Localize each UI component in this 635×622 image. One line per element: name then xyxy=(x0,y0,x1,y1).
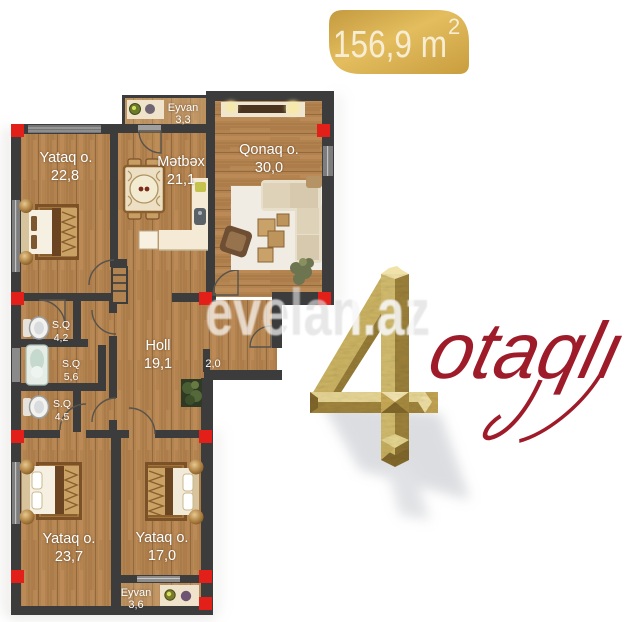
svg-text:Eyvan: Eyvan xyxy=(121,587,152,599)
svg-text:3,3: 3,3 xyxy=(175,114,190,126)
svg-text:Holl: Holl xyxy=(146,338,171,354)
svg-text:156,9 m: 156,9 m xyxy=(333,24,447,66)
svg-text:4,2: 4,2 xyxy=(54,332,69,344)
svg-text:30,0: 30,0 xyxy=(255,160,283,176)
svg-text:Yataq o.: Yataq o. xyxy=(136,530,189,546)
svg-text:2: 2 xyxy=(448,14,460,39)
svg-text:17,0: 17,0 xyxy=(148,548,176,564)
svg-text:4,5: 4,5 xyxy=(55,411,70,423)
svg-text:S.Q: S.Q xyxy=(52,319,70,331)
svg-text:Qonaq o.: Qonaq o. xyxy=(239,142,299,158)
svg-text:5,6: 5,6 xyxy=(64,371,79,383)
svg-text:Mətbəx: Mətbəx xyxy=(157,154,205,170)
svg-text:otaqlı: otaqlı xyxy=(421,306,633,396)
svg-text:Yataq o.: Yataq o. xyxy=(40,150,93,166)
svg-text:S.Q: S.Q xyxy=(53,398,71,410)
svg-text:Yataq o.: Yataq o. xyxy=(43,531,96,547)
svg-text:19,1: 19,1 xyxy=(144,356,172,372)
svg-text:S.Q: S.Q xyxy=(62,358,80,370)
svg-text:Eyvan: Eyvan xyxy=(168,102,199,114)
svg-text:2,0: 2,0 xyxy=(205,358,220,370)
svg-text:3,6: 3,6 xyxy=(128,599,143,611)
svg-text:21,1: 21,1 xyxy=(167,172,195,188)
svg-text:23,7: 23,7 xyxy=(55,549,83,565)
svg-text:22,8: 22,8 xyxy=(51,168,79,184)
